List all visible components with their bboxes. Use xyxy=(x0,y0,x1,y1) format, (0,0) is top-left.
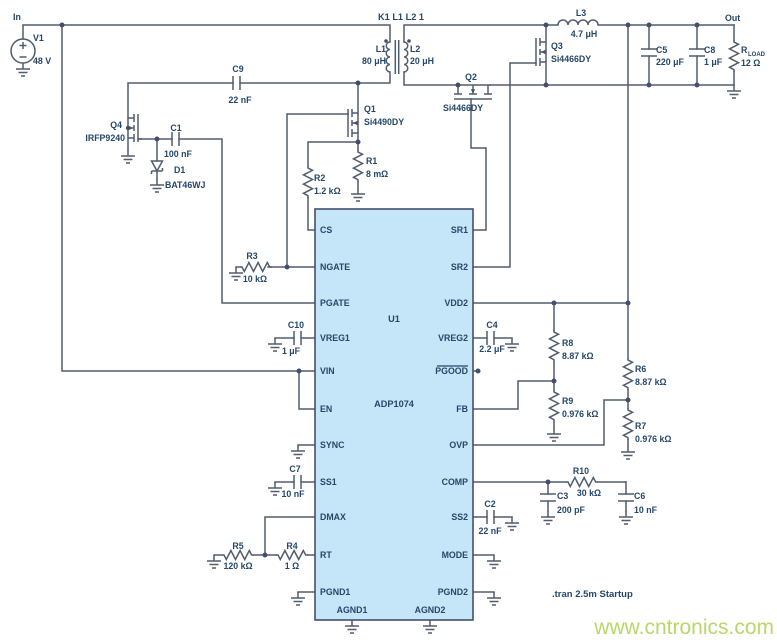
c3-ref: C3 xyxy=(557,491,568,501)
pin-vdd2: VDD2 xyxy=(445,298,469,308)
pin-vreg1: VREG1 xyxy=(320,333,350,343)
c5-value: 220 μF xyxy=(656,57,685,67)
c10-value: 1 μF xyxy=(282,346,301,356)
ic-u1: U1 ADP1074 CS NGATE PGATE VREG1 VIN EN S… xyxy=(315,209,473,620)
out-label: Out xyxy=(725,13,740,23)
r5-ref: R5 xyxy=(232,541,243,551)
resistor-r7 xyxy=(621,408,635,459)
r2-value: 1.2 kΩ xyxy=(314,186,341,196)
r6-value: 8.87 kΩ xyxy=(635,377,667,387)
v1-ref: V1 xyxy=(33,33,44,43)
q4-ref: Q4 xyxy=(110,120,122,130)
c8-ref: C8 xyxy=(704,45,715,55)
d1-part: BAT46WJ xyxy=(165,180,206,190)
c1-value: 100 nF xyxy=(164,149,192,159)
schematic-canvas: U1 ADP1074 CS NGATE PGATE VREG1 VIN EN S… xyxy=(0,0,777,642)
pin-sr2: SR2 xyxy=(451,262,468,272)
r3-value: 10 kΩ xyxy=(243,274,267,284)
pin-ss1: SS1 xyxy=(320,477,337,487)
c9-value: 22 nF xyxy=(229,95,253,105)
watermark: www.cntronics.com xyxy=(593,616,774,639)
c7-value: 10 nF xyxy=(282,489,306,499)
pin-vreg2: VREG2 xyxy=(438,333,468,343)
pin-vin: VIN xyxy=(320,366,335,376)
r4-ref: R4 xyxy=(286,541,297,551)
transformer-coupling-label: K1 L1 L2 1 xyxy=(378,12,424,22)
rload-value: 12 Ω xyxy=(741,58,760,68)
pin-comp: COMP xyxy=(442,477,469,487)
r9-value: 0.976 kΩ xyxy=(562,409,598,419)
r4-value: 1 Ω xyxy=(285,561,299,571)
l1-value: 80 μH xyxy=(362,56,386,66)
r9-ref: R9 xyxy=(562,396,573,406)
v1-value: 48 V xyxy=(33,56,51,66)
resistor-r4 xyxy=(276,551,308,560)
pin-ngate: NGATE xyxy=(320,262,350,272)
pin-ss2: SS2 xyxy=(451,512,468,522)
spice-directive: .tran 2.5m Startup xyxy=(552,589,633,600)
r3-ref: R3 xyxy=(246,251,257,261)
c8-value: 1 μF xyxy=(704,57,723,67)
c2-ref: C2 xyxy=(484,499,495,509)
rload-ref: R xyxy=(741,45,748,55)
q1-ref: Q1 xyxy=(364,104,376,114)
schematic-page: U1 ADP1074 CS NGATE PGATE VREG1 VIN EN S… xyxy=(0,0,777,642)
resistor-r2 xyxy=(304,166,313,198)
c1-ref: C1 xyxy=(170,123,181,133)
r10-value: 30 kΩ xyxy=(577,488,601,498)
capacitor-c5 xyxy=(641,49,657,56)
inductor-l3 xyxy=(558,20,598,25)
capacitor-c9 xyxy=(233,76,240,90)
pin-pgnd2: PGND2 xyxy=(438,587,468,597)
pin-pgate: PGATE xyxy=(320,298,350,308)
r1-value: 8 mΩ xyxy=(366,169,388,179)
c2-value: 22 nF xyxy=(479,526,503,536)
r8-value: 8.87 kΩ xyxy=(562,351,594,361)
resistor-r10 xyxy=(566,478,598,487)
resistor-r1 xyxy=(351,150,365,201)
pin-fb: FB xyxy=(456,404,468,414)
pin-agnd1: AGND1 xyxy=(337,605,368,615)
r1-ref: R1 xyxy=(366,156,377,166)
pin-en: EN xyxy=(320,404,332,414)
transformer-k1 xyxy=(384,39,411,74)
pin-dmax: DMAX xyxy=(320,512,346,522)
c9-ref: C9 xyxy=(232,64,243,74)
resistor-r8 xyxy=(550,330,559,362)
ic-ref: U1 xyxy=(388,314,400,324)
c4-ref: C4 xyxy=(486,320,497,330)
c5-ref: C5 xyxy=(656,45,667,55)
r7-ref: R7 xyxy=(635,421,646,431)
l3-ref: L3 xyxy=(576,8,586,18)
r5-value: 120 kΩ xyxy=(223,561,252,571)
q1-part: Si4490DY xyxy=(364,117,404,127)
pin-pgnd1: PGND1 xyxy=(320,587,350,597)
c6-value: 10 nF xyxy=(634,505,658,515)
l2-value: 20 μH xyxy=(410,56,434,66)
resistor-rload xyxy=(727,40,741,98)
pin-mode: MODE xyxy=(442,550,469,560)
r2-ref: R2 xyxy=(314,173,325,183)
c7-ref: C7 xyxy=(289,464,300,474)
l1-polarity-dot xyxy=(384,39,388,43)
q4-part: IRFP9240 xyxy=(85,133,125,143)
c10-ref: C10 xyxy=(288,320,304,330)
mosfet-q1 xyxy=(348,109,358,137)
l2-polarity-dot xyxy=(407,39,411,43)
capacitor-c8 xyxy=(689,49,705,56)
l1-ref: L1 xyxy=(376,44,386,54)
mosfet-q3 xyxy=(536,38,546,66)
r7-value: 0.976 kΩ xyxy=(635,434,671,444)
pin-sync: SYNC xyxy=(320,440,345,450)
diode-d1 xyxy=(150,161,164,192)
capacitor-c1 xyxy=(172,132,179,146)
in-label: In xyxy=(13,12,21,22)
pin-rt: RT xyxy=(320,550,332,560)
r8-ref: R8 xyxy=(562,338,573,348)
pin-pgood: PGOOD xyxy=(435,366,468,376)
l2-ref: L2 xyxy=(410,44,420,54)
q2-ref: Q2 xyxy=(465,72,477,82)
voltage-source-v1 xyxy=(11,39,35,76)
q3-ref: Q3 xyxy=(551,41,563,51)
pin-cs: CS xyxy=(320,225,332,235)
r10-ref: R10 xyxy=(573,466,589,476)
c4-value: 2.2 μF xyxy=(479,344,505,354)
q2-part: Si4466DY xyxy=(443,103,483,113)
pin-sr1: SR1 xyxy=(451,225,468,235)
l3-value: 4.7 μH xyxy=(571,29,597,39)
ic-part-number: ADP1074 xyxy=(374,399,415,409)
d1-ref: D1 xyxy=(174,165,185,175)
c3-value: 200 pF xyxy=(557,505,585,515)
pin-ovp: OVP xyxy=(449,440,468,450)
resistor-r9 xyxy=(547,390,561,441)
mosfet-q2 xyxy=(454,85,492,99)
resistor-r6 xyxy=(624,358,633,390)
c6-ref: C6 xyxy=(634,491,645,501)
q3-part: Si4466DY xyxy=(551,54,591,64)
r6-ref: R6 xyxy=(635,364,646,374)
pin-agnd2: AGND2 xyxy=(415,605,446,615)
